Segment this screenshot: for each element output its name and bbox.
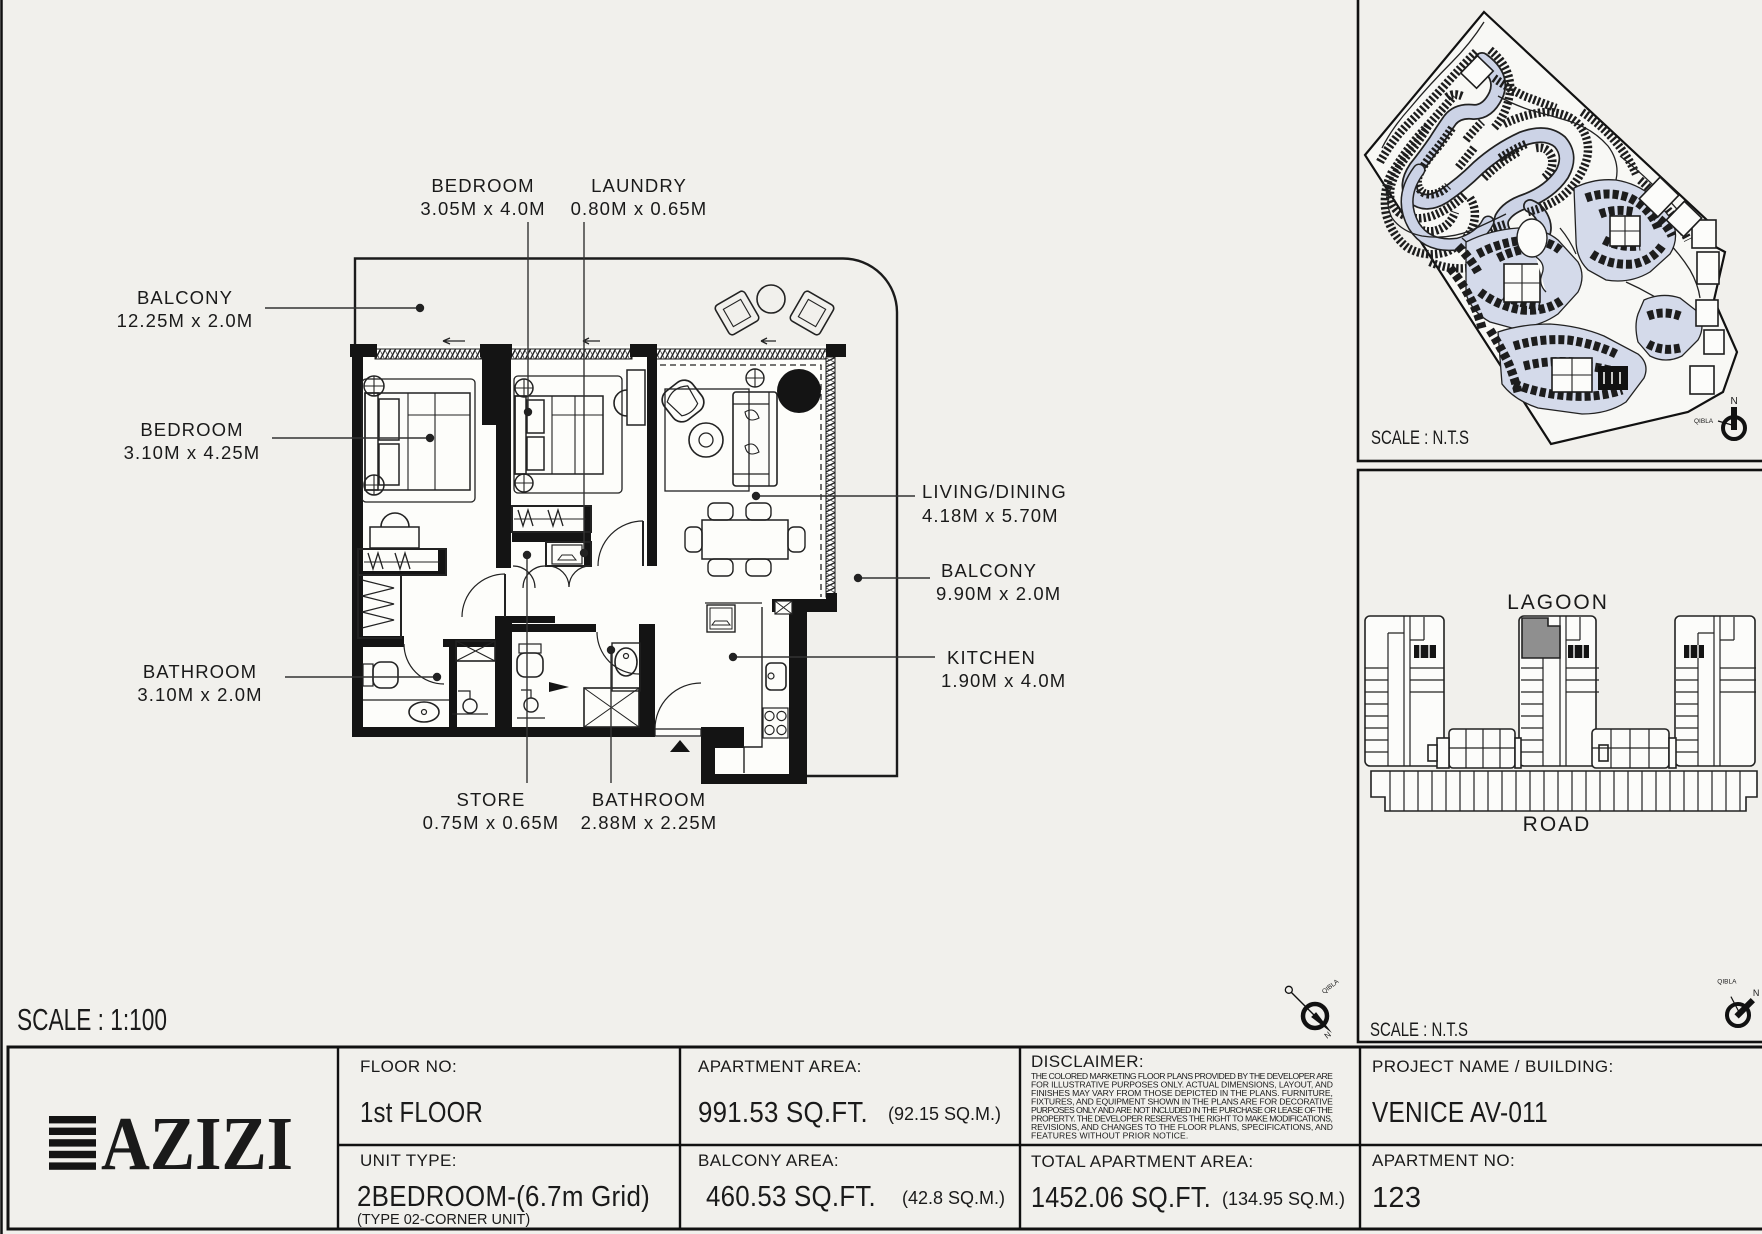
svg-text:1st FLOOR: 1st FLOOR <box>360 1097 483 1129</box>
svg-text:(42.8 SQ.M.): (42.8 SQ.M.) <box>902 1188 1005 1208</box>
svg-text:KITCHEN: KITCHEN <box>947 647 1036 668</box>
svg-text:3.05M x 4.0M: 3.05M x 4.0M <box>420 198 545 219</box>
svg-text:DISCLAIMER:: DISCLAIMER: <box>1031 1052 1144 1071</box>
svg-text:UNIT TYPE:: UNIT TYPE: <box>360 1151 457 1170</box>
svg-text:BALCONY: BALCONY <box>137 287 233 308</box>
svg-text:BATHROOM: BATHROOM <box>592 789 706 810</box>
svg-text:1.90M x 4.0M: 1.90M x 4.0M <box>941 670 1066 691</box>
svg-text:LAUNDRY: LAUNDRY <box>591 175 687 196</box>
svg-text:TOTAL APARTMENT AREA:: TOTAL APARTMENT AREA: <box>1031 1152 1254 1171</box>
svg-text:460.53 SQ.FT.: 460.53 SQ.FT. <box>706 1181 876 1213</box>
svg-text:QIBLA: QIBLA <box>1717 978 1737 985</box>
svg-text:LIVING/DINING: LIVING/DINING <box>922 481 1067 502</box>
svg-text:QIBLA: QIBLA <box>1694 418 1714 425</box>
svg-text:QIBLA: QIBLA <box>1321 978 1341 996</box>
svg-text:4.18M x 5.70M: 4.18M x 5.70M <box>922 505 1059 526</box>
svg-text:ROAD: ROAD <box>1523 813 1592 836</box>
svg-text:BATHROOM: BATHROOM <box>143 661 257 682</box>
svg-text:12.25M x 2.0M: 12.25M x 2.0M <box>117 310 254 331</box>
svg-text:SCALE : N.T.S: SCALE : N.T.S <box>1371 428 1469 449</box>
svg-text:N: N <box>1731 396 1738 407</box>
svg-text:FEATURES WITHOUT PRIOR NOTICE.: FEATURES WITHOUT PRIOR NOTICE. <box>1031 1131 1188 1141</box>
svg-text:1452.06 SQ.FT.: 1452.06 SQ.FT. <box>1031 1182 1211 1214</box>
svg-text:123: 123 <box>1372 1182 1421 1214</box>
svg-text:3.10M x 4.25M: 3.10M x 4.25M <box>124 442 261 463</box>
svg-text:BALCONY AREA:: BALCONY AREA: <box>698 1151 839 1170</box>
svg-text:SCALE : N.T.S: SCALE : N.T.S <box>1370 1020 1468 1041</box>
svg-text:STORE: STORE <box>457 789 526 810</box>
svg-text:FLOOR NO:: FLOOR NO: <box>360 1057 457 1076</box>
svg-text:PROJECT NAME / BUILDING:: PROJECT NAME / BUILDING: <box>1372 1057 1614 1076</box>
svg-text:2BEDROOM-(6.7m Grid): 2BEDROOM-(6.7m Grid) <box>357 1181 650 1213</box>
svg-text:BALCONY: BALCONY <box>941 560 1037 581</box>
svg-text:BEDROOM: BEDROOM <box>140 419 243 440</box>
svg-text:2.88M x 2.25M: 2.88M x 2.25M <box>581 812 718 833</box>
svg-text:0.75M x 0.65M: 0.75M x 0.65M <box>423 812 560 833</box>
svg-text:LAGOON: LAGOON <box>1507 591 1609 614</box>
svg-text:9.90M x 2.0M: 9.90M x 2.0M <box>936 583 1061 604</box>
svg-text:(92.15 SQ.M.): (92.15 SQ.M.) <box>888 1104 1001 1124</box>
svg-text:VENICE AV-011: VENICE AV-011 <box>1372 1097 1548 1129</box>
svg-text:0.80M x 0.65M: 0.80M x 0.65M <box>571 198 708 219</box>
svg-text:N: N <box>1753 988 1760 998</box>
svg-text:991.53 SQ.FT.: 991.53 SQ.FT. <box>698 1097 868 1129</box>
svg-text:3.10M x 2.0M: 3.10M x 2.0M <box>137 684 262 705</box>
svg-text:APARTMENT NO:: APARTMENT NO: <box>1372 1151 1515 1170</box>
svg-text:SCALE : 1:100: SCALE : 1:100 <box>17 1002 167 1037</box>
svg-text:BEDROOM: BEDROOM <box>431 175 534 196</box>
svg-text:AZIZI: AZIZI <box>101 1102 293 1186</box>
svg-text:N: N <box>1323 1030 1333 1041</box>
svg-text:(TYPE 02-CORNER UNIT): (TYPE 02-CORNER UNIT) <box>357 1212 530 1228</box>
svg-text:(134.95 SQ.M.): (134.95 SQ.M.) <box>1222 1189 1345 1209</box>
svg-text:APARTMENT AREA:: APARTMENT AREA: <box>698 1057 862 1076</box>
